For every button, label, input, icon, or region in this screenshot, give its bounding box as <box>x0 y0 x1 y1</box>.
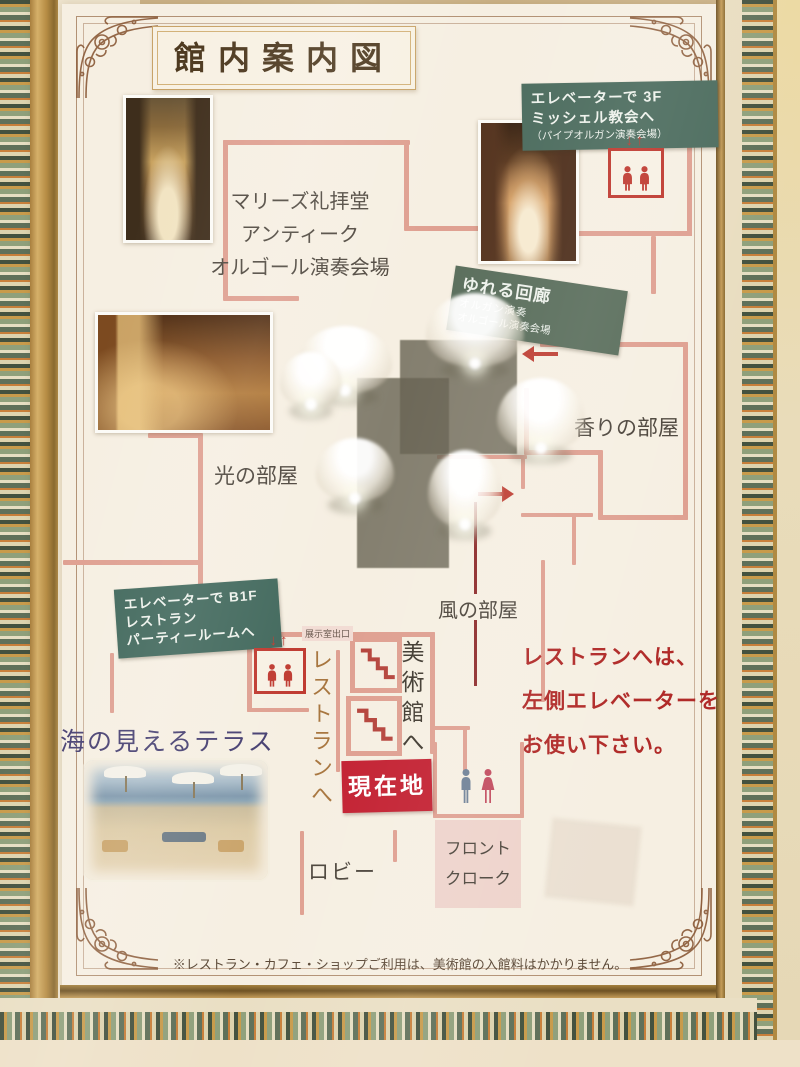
terrace-table <box>162 832 206 842</box>
map-wall <box>393 830 397 862</box>
mat-outer-bottom <box>0 1040 800 1067</box>
chapel-label: マリーズ礼拝堂 アンティーク オルゴール演奏会場 <box>178 186 422 285</box>
footer-note: ※レストラン・カフェ・ショップご利用は、美術館の入館料はかかりません。 <box>150 954 650 973</box>
terrace-chair <box>102 840 128 852</box>
sea-terrace-label: 海の見えるテラス <box>60 722 275 758</box>
map-wall <box>683 342 688 520</box>
elevator-arrows-icon: ↓↑ <box>608 134 664 148</box>
map-wall <box>598 452 603 518</box>
page-title: 館内案内図 <box>152 26 416 90</box>
mat-bottom <box>0 998 757 1012</box>
terrace-chair <box>218 840 244 852</box>
gold-frame-left <box>30 0 60 1067</box>
light-room-label: 光の部屋 <box>214 460 298 490</box>
map-wall <box>433 742 437 818</box>
elevator-b1f: ↓↑ <box>254 634 306 694</box>
elevator-icon <box>608 148 664 198</box>
restaurant-notice: レストランへは、 左側エレベーターを お使い下さい。 <box>522 636 722 768</box>
map-wall <box>247 708 309 712</box>
map-wall <box>223 296 299 301</box>
elevator-arrows-icon: ↓↑ <box>254 634 306 648</box>
sheet-bottom-edge <box>60 985 718 998</box>
map-wall <box>148 433 203 438</box>
marbled-border-left <box>0 0 30 1067</box>
marbled-border-bottom <box>0 1012 757 1040</box>
map-wall <box>651 236 656 294</box>
chandelier-lamp-reflection <box>280 352 342 408</box>
notice-line: お使い下さい。 <box>522 724 722 768</box>
to-museum-label: 美術館へ <box>394 640 428 760</box>
arrow-left-icon <box>528 352 558 356</box>
mat-right <box>725 0 742 1067</box>
notice-line: 左側エレベーターを <box>522 680 722 724</box>
to-restaurant-label: レストランへ <box>304 648 336 810</box>
cloak-label: クローク <box>435 864 521 894</box>
stairs-icon <box>356 642 398 693</box>
mat-outer-right <box>777 0 800 1067</box>
current-location-badge: 現在地 <box>341 759 432 813</box>
elevator-icon <box>254 648 306 694</box>
restroom-icon <box>456 768 500 809</box>
map-wall <box>336 650 340 772</box>
glass-reflection <box>544 818 642 907</box>
map-wall <box>110 653 114 713</box>
map-wall <box>300 831 304 915</box>
stairs-icon <box>352 702 396 755</box>
map-wall <box>223 140 410 145</box>
notice-line: レストランへは、 <box>522 636 722 680</box>
marbled-border-right <box>742 0 773 1067</box>
map-wall <box>63 560 203 565</box>
exhibit-exit-label: 展示室出口 <box>302 626 353 641</box>
wind-room-label: 風の部屋 <box>438 594 518 623</box>
map-wall <box>430 632 435 754</box>
route-line <box>474 620 477 686</box>
map-wall <box>521 513 593 517</box>
map-wall <box>463 726 467 772</box>
front-desk-area: フロント クローク <box>435 820 521 908</box>
umbrella-icon <box>104 766 146 778</box>
sea-terrace-photo <box>84 760 268 880</box>
fragrance-room-label: 香りの部屋 <box>574 412 679 442</box>
framed-floor-guide-sign: 館内案内図 エレベーターで 3F ミッシェル教会へ （パイプオルガン演奏会場） … <box>0 0 800 1067</box>
corner-flourish-top-left <box>70 10 164 104</box>
light-room-photo <box>95 312 273 433</box>
chapel-label-line: マリーズ礼拝堂 <box>178 186 422 219</box>
umbrella-icon <box>172 772 214 784</box>
chapel-label-line: アンティーク <box>178 219 422 252</box>
elevator-3f: ↓↑ <box>608 134 664 198</box>
lobby-label: ロビー <box>308 856 377 886</box>
map-wall <box>598 515 688 520</box>
map-wall <box>572 513 576 565</box>
front-desk-label: フロント <box>435 834 521 864</box>
umbrella-icon <box>220 764 262 776</box>
chapel-label-line: オルゴール演奏会場 <box>178 252 422 285</box>
map-wall <box>433 814 524 818</box>
